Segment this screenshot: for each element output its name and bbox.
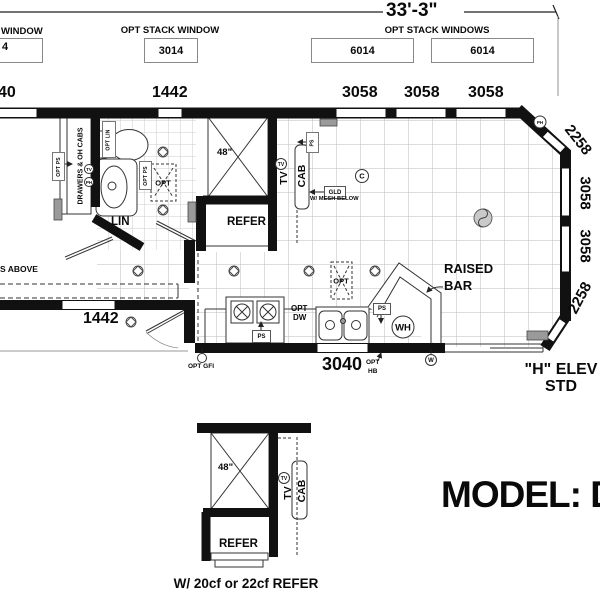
window-1442-top [158,109,182,118]
dim-3058-right-a: 3058 [578,176,593,209]
wh-label: WH [395,323,411,334]
dim-3040: 3040 [322,355,362,373]
lin-closet-label: LIN [111,217,130,229]
window-size-box-3014: 3014 [144,38,198,63]
tv-letter: TV [278,162,285,168]
window-schedule-label-center: OPT STACK WINDOW [116,26,224,36]
ph-letter: PH [86,180,92,185]
refer-label: REFER [227,217,266,229]
opt-dw-label-line2: DW [293,314,306,322]
vanity-sink [96,159,137,216]
detail-shower-48-label: 48" [218,463,233,473]
opt-ps-box-bath: OPT PS [139,161,152,190]
w-letter: W [428,358,434,364]
detail-cab-label: CAB [297,480,308,503]
raised-bar-label-line2: BAR [444,279,472,292]
window-size-box-6014-a: 6014 [311,38,414,63]
window-3058-right-b [562,226,570,272]
detail-refer-front [215,560,263,567]
window-size-box-6014-b: 6014 [431,38,534,63]
hall-floor [97,250,189,305]
dim-3058-c: 3058 [468,85,504,101]
kitchen-sink [316,307,369,344]
window-3058-a [336,109,386,118]
opt-ps-label: OPT PS [56,157,62,177]
opt-pantry-label: OPT [333,277,348,285]
model-title: MODEL: D [441,476,600,513]
window-size-left: 4 [2,42,8,53]
window-3058-b [396,109,446,118]
register-icon [54,199,62,220]
opt-lin-box: OPT LIN [102,121,116,158]
light-icon [229,266,239,276]
register-icon [527,331,548,340]
tv-letter: TV [86,167,92,172]
elevation-note-line1: "H" ELEV [517,362,600,378]
opt-ps-label: OPT PS [143,166,149,186]
dim-1442-bottom: 1442 [83,311,119,327]
ps-box-range: PS [252,330,271,343]
shower-48-label: 48" [217,148,232,158]
light-icon [370,266,380,276]
gfi-outlet-icon [198,354,207,363]
ps-label: PS [309,139,315,146]
cab-label: CAB [297,165,308,188]
detail-tv-label: TV [283,486,294,499]
opt-lin-label: OPT LIN [106,129,112,150]
mesh-below-label: W/ MESH BELOW [310,197,359,203]
light-icon [158,205,168,215]
window-3058-c [456,109,506,118]
ph-letter: PH [537,120,543,125]
opt-gfi-label: OPT GFI [188,364,214,371]
register-icon [188,202,196,222]
light-icon [158,147,168,157]
opt-hb-label-line1: OPT [366,360,379,367]
light-icon [133,266,143,276]
opt-hb-label-line2: HB [368,369,377,376]
c-letter: C [359,172,365,181]
register-icon [320,119,337,126]
tv-label: TV [279,171,290,184]
light-icon [126,317,136,327]
opt-dw-label-line1: OPT [291,305,307,313]
window-3040-left [0,109,37,118]
dim-3058-a: 3058 [342,85,378,101]
opt-ps-box-left: OPT PS [52,152,65,181]
elevation-note-line2: STD [517,379,600,395]
ceiling-fan-icon [474,209,492,227]
detail-refer-front [211,553,268,560]
light-icon [304,266,314,276]
window-1442-bottom [62,301,115,310]
opt-shower-label: OPT [155,179,170,187]
overall-width-dimension: 33'-3" [386,1,438,20]
dim-3058-right-b: 3058 [578,229,593,262]
cabs-above-label: S ABOVE [0,265,38,274]
floor-plan-sheet: TV PH TV C PH W WH TV 33'-3" WINDOW 4 OP… [0,0,600,600]
window-schedule-label-right: OPT STACK WINDOWS [365,26,509,36]
detail-caption: W/ 20cf or 22cf REFER [166,577,326,591]
window-schedule-label-left: WINDOW [1,27,43,37]
detail-refer-label: REFER [219,539,258,551]
window-3058-right-a [562,168,570,216]
raised-bar-label-line1: RAISED [444,262,493,275]
ps-box-top: PS [306,132,319,153]
window-3040-kitchen [317,344,368,353]
dim-3058-b: 3058 [404,85,440,101]
tv-letter: TV [281,476,288,482]
dim-1442-top: 1442 [152,85,188,101]
dim-40: 40 [0,85,16,101]
drawers-oh-cabs-label: DRAWERS & OH CABS [78,127,85,204]
ps-box-sink: PS [373,303,391,315]
